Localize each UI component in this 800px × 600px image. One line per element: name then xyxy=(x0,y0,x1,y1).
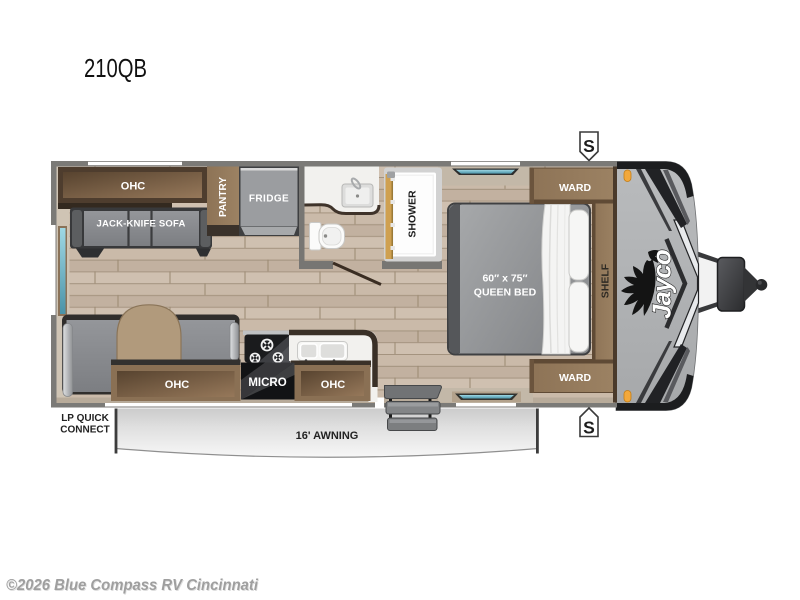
svg-text:S: S xyxy=(583,418,595,438)
svg-text:WARD: WARD xyxy=(559,372,591,384)
svg-text:OHC: OHC xyxy=(165,379,190,391)
svg-text:LP QUICK: LP QUICK xyxy=(61,413,109,424)
svg-text:©2026 Blue Compass RV Cincinna: ©2026 Blue Compass RV Cincinnati xyxy=(6,577,259,594)
svg-text:SHELF: SHELF xyxy=(600,263,612,298)
svg-text:CONNECT: CONNECT xyxy=(60,425,109,436)
svg-text:Jayco: Jayco xyxy=(647,249,677,319)
svg-text:S: S xyxy=(583,136,595,156)
svg-text:SHOWER: SHOWER xyxy=(407,190,419,238)
svg-text:WARD: WARD xyxy=(559,182,591,194)
svg-text:MICRO: MICRO xyxy=(248,377,286,389)
svg-text:OHC: OHC xyxy=(121,181,146,193)
svg-text:60″ x 75″: 60″ x 75″ xyxy=(482,273,527,285)
svg-text:16' AWNING: 16' AWNING xyxy=(296,430,359,442)
svg-text:QUEEN BED: QUEEN BED xyxy=(474,287,537,299)
svg-text:OHC: OHC xyxy=(321,379,346,391)
svg-text:FRIDGE: FRIDGE xyxy=(249,194,289,205)
svg-text:JACK-KNIFE SOFA: JACK-KNIFE SOFA xyxy=(96,219,185,230)
svg-text:210QB: 210QB xyxy=(84,53,147,83)
svg-text:PANTRY: PANTRY xyxy=(218,177,229,217)
